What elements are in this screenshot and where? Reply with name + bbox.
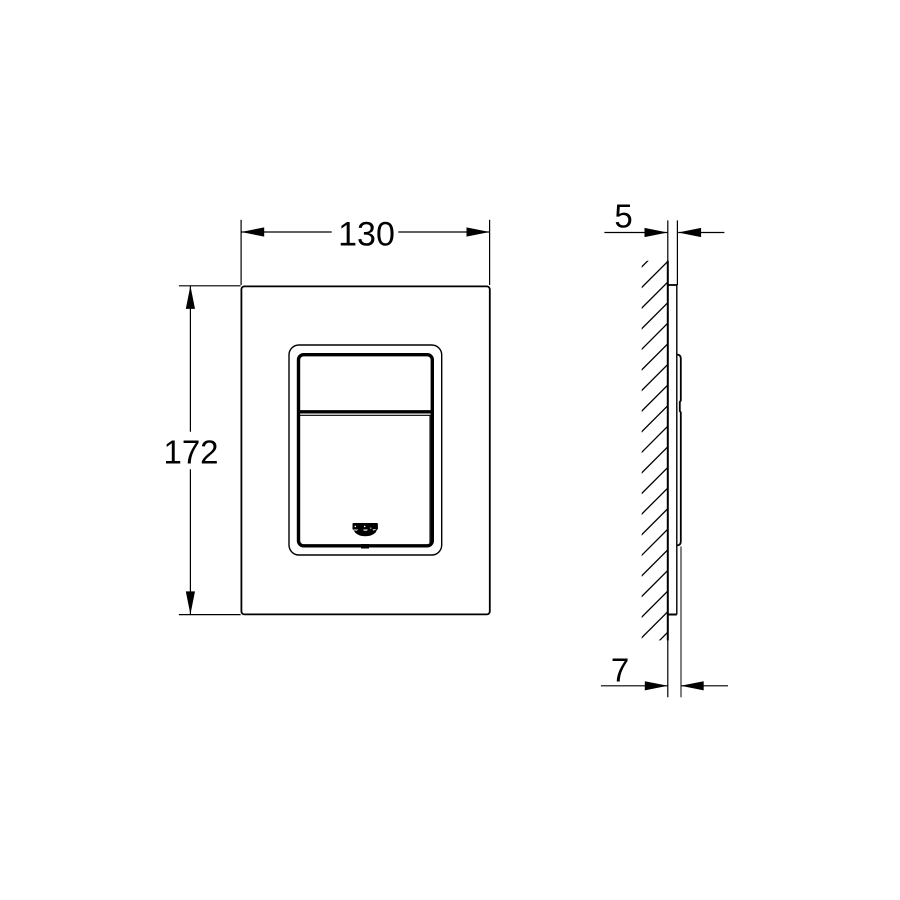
svg-text:130: 130 bbox=[338, 216, 395, 254]
svg-text:172: 172 bbox=[163, 433, 218, 470]
svg-text:7: 7 bbox=[611, 651, 629, 688]
svg-text:5: 5 bbox=[614, 198, 632, 235]
